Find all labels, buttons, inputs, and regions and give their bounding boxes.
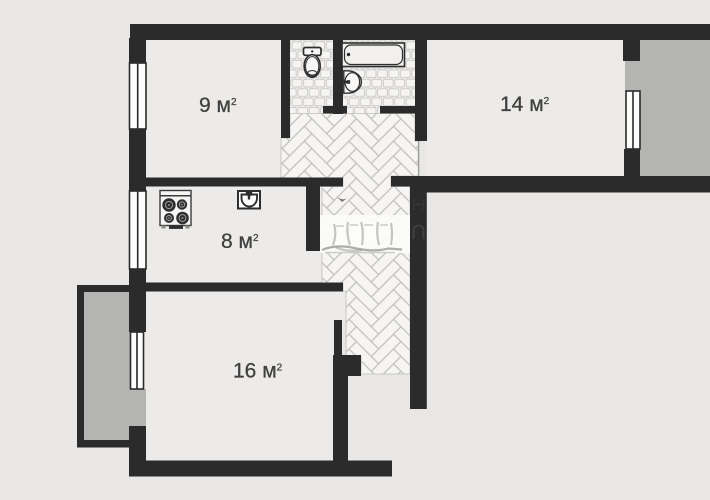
- svg-text:14 м2: 14 м2: [500, 93, 550, 116]
- svg-text:16 м2: 16 м2: [233, 360, 283, 383]
